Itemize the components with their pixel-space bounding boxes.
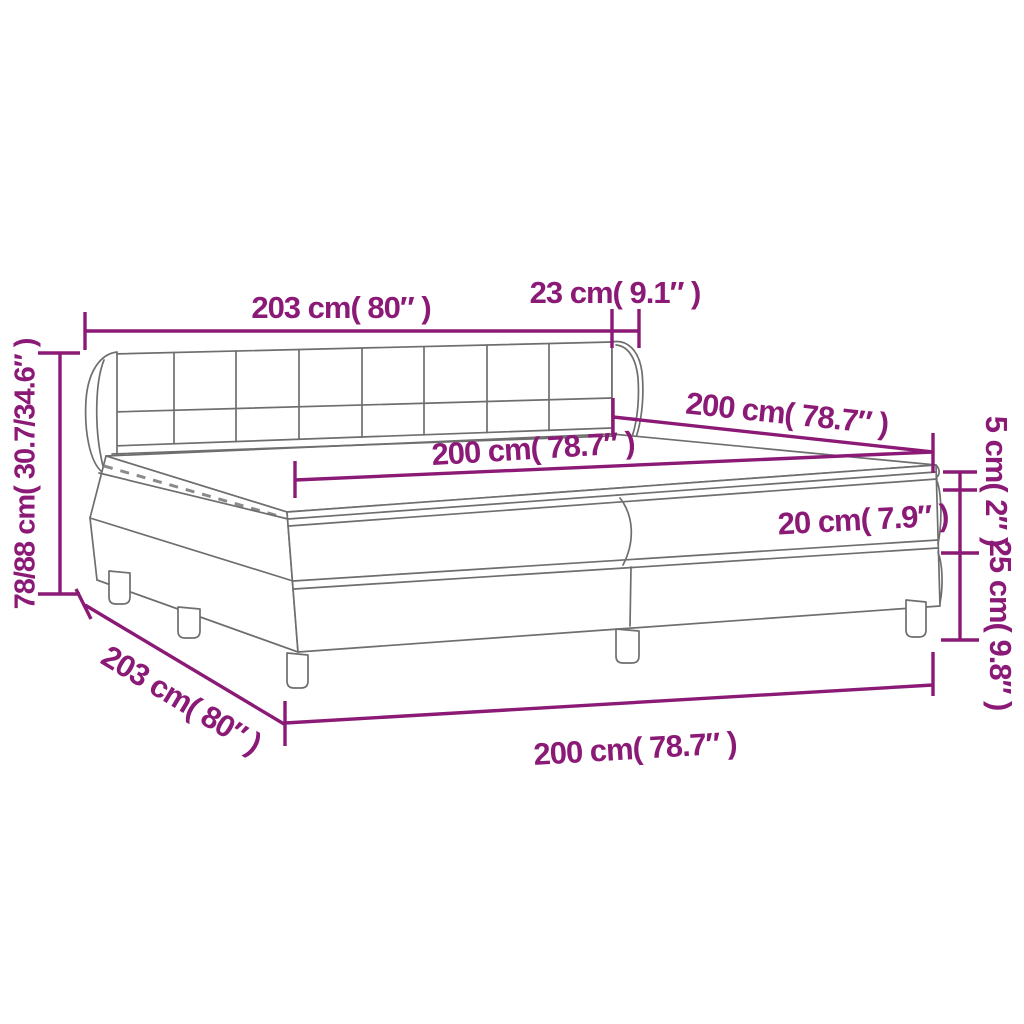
- bed-leg: [109, 571, 130, 604]
- bed-leg: [906, 600, 926, 637]
- label-base-height: 25 cm( 9.8″ ): [982, 540, 1018, 711]
- label-bed-height: 78/88 cm( 30.7/34.6″ ): [10, 339, 43, 610]
- base-middle-split: [630, 567, 631, 626]
- bed-leg: [287, 653, 308, 688]
- bed-leg: [178, 607, 200, 638]
- bed-leg: [616, 629, 639, 663]
- label-topper-height: 5 cm( 2″ ): [978, 416, 1014, 547]
- label-headboard-depth: 23 cm( 9.1″ ): [530, 275, 701, 311]
- dim-bed-height: [38, 353, 80, 594]
- label-headboard-width: 203 cm( 80″ ): [251, 290, 430, 326]
- dimension-diagram: 203 cm( 80″ ) 23 cm( 9.1″ ) 200 cm( 78.7…: [0, 0, 1024, 1024]
